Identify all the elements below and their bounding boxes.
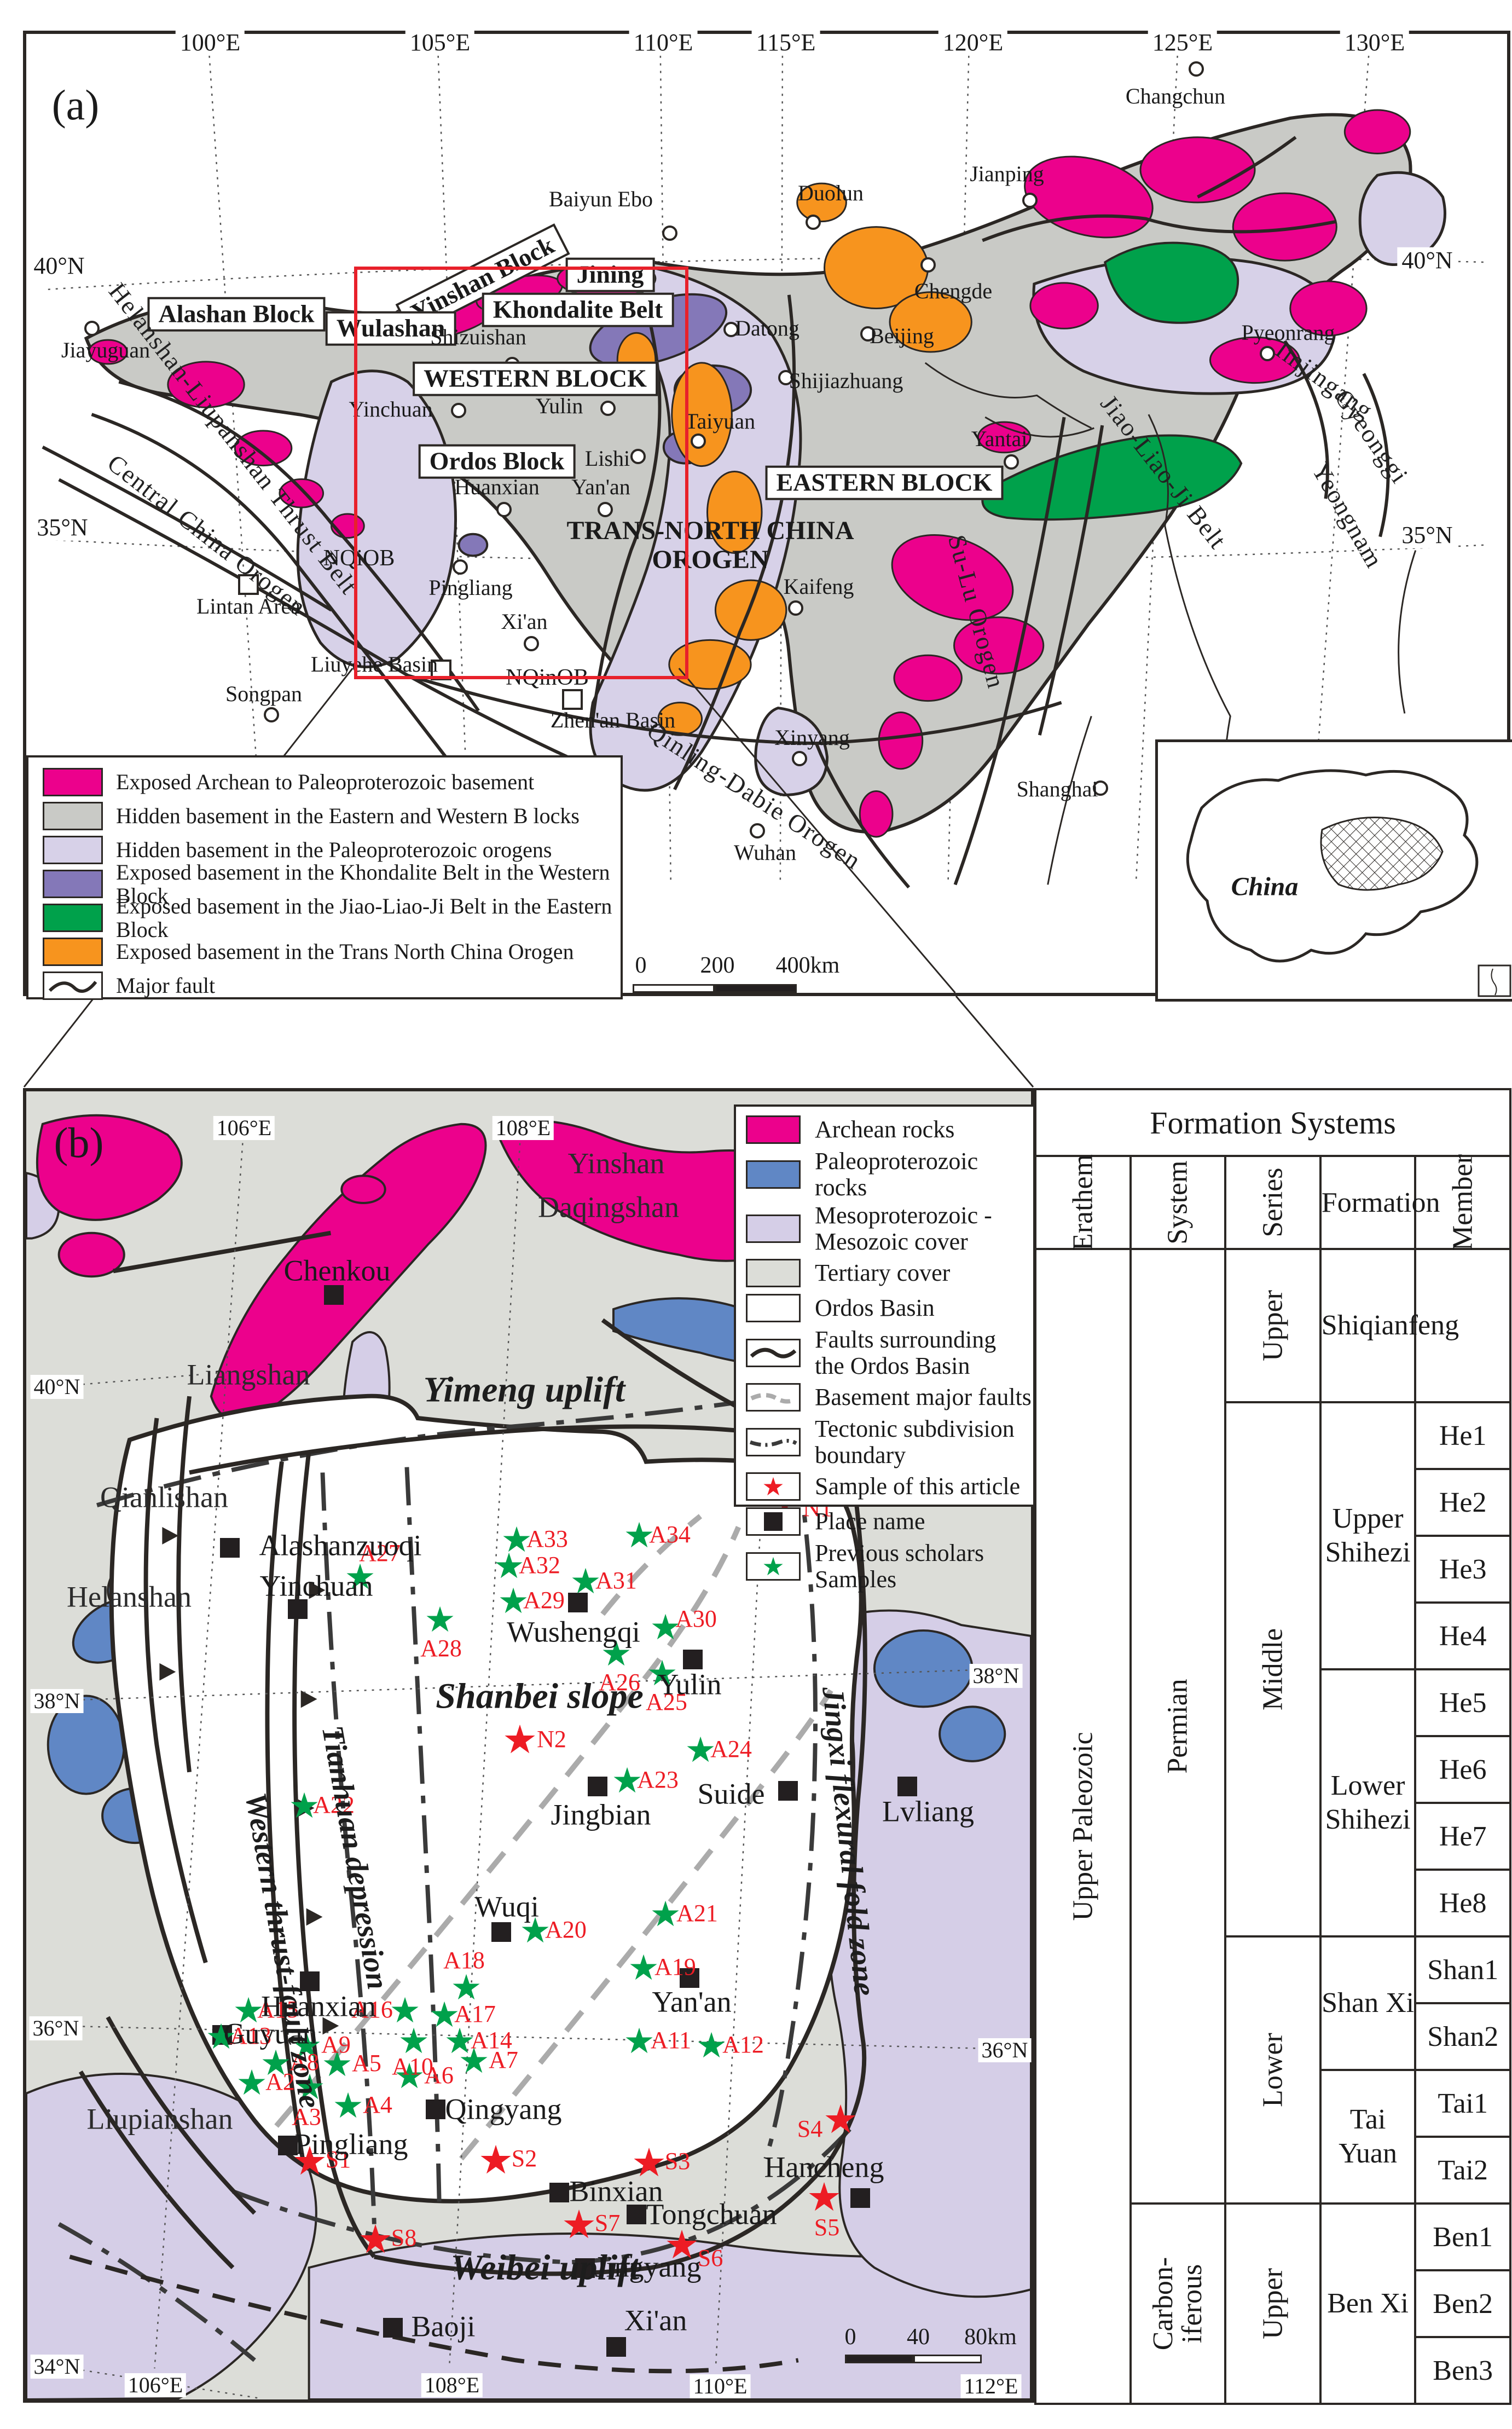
formation-systems-table: Formation Systems Erathem System Series … [1034, 1088, 1511, 2403]
place-label-yan-an: Yan'an [652, 1986, 731, 2018]
legend-a-item-major-fault: Major fault [28, 969, 621, 1003]
formation-shan-xi: Shan Xi [1320, 1936, 1416, 2070]
series-lower: Lower [1256, 2033, 1289, 2107]
label-qianlishan: Qianlishan [100, 1481, 228, 1513]
city-marker-yantai [1004, 454, 1019, 470]
fault-line-icon [746, 1339, 801, 1367]
member-tai1: Tai1 [1415, 2070, 1510, 2137]
label-35-n: 35°N [32, 514, 92, 541]
sample-label-a9: A9 [321, 2032, 351, 2058]
sample-label-s3: S3 [665, 2148, 690, 2174]
scalebar-b-seg2 [913, 2355, 982, 2363]
city-marker-jiayuguan [84, 321, 100, 336]
sample-star-n2: ★ [502, 1720, 538, 1759]
legend-b-label-2: Mesoproterozoic - Mesozoic cover [815, 1202, 1023, 1254]
sample-label-a28: A28 [420, 1635, 462, 1662]
sample-label-a17: A17 [454, 2001, 496, 2027]
scalebar-b-80km: 80km [964, 2324, 1017, 2350]
label-38-n: 38°N [970, 1664, 1023, 1688]
place-marker-lvliang [897, 1777, 917, 1796]
col-header-member: Member [1447, 1154, 1479, 1251]
legend-a-item-jiaoliaoji: Exposed basement in the Jiao-Liao-Ji Bel… [28, 901, 621, 935]
swatch-magenta [43, 768, 103, 796]
legend-a-label-2: Hidden basement in the Paleoproterozoic … [116, 838, 552, 861]
formation-shiqianfeng: Shiqianfeng [1320, 1249, 1416, 1402]
member-he4: He4 [1415, 1603, 1510, 1669]
basin-label-zhen-an-basin: Zhen'an Basin [551, 708, 675, 732]
label-110-e: 110°E [690, 2374, 751, 2398]
legend-b-item-archean: Archean rocks [736, 1112, 1033, 1147]
legend-b-item-faults: Faults surrounding the Ordos Basin [736, 1326, 1033, 1380]
member-ben2: Ben2 [1415, 2270, 1510, 2337]
label-108-e: 108°E [421, 2373, 483, 2397]
swatch-lavender [43, 836, 103, 864]
sample-label-a18: A18 [443, 1947, 485, 1974]
place-marker-alashanzuoqi [220, 1538, 240, 1558]
sample-label-a14: A14 [471, 2027, 512, 2054]
legend-b-label-5: Faults surrounding the Ordos Basin [815, 1327, 1023, 1379]
sample-label-s6: S6 [698, 2245, 723, 2271]
sample-star-s7: ★ [561, 2205, 597, 2244]
table-title: Formation Systems [1035, 1089, 1510, 1156]
label-36-n: 36°N [978, 2038, 1032, 2062]
panel-b: (b) Archean rocks Paleoproterozoic rocks… [23, 1088, 1034, 2403]
china-inset-svg [1158, 742, 1512, 999]
label-40-n: 40°N [31, 1375, 84, 1399]
legend-b-label-1: Paleoproterozoic rocks [815, 1148, 1033, 1200]
swatch-archean [746, 1115, 801, 1144]
label-helanshan: Helanshan [67, 1581, 192, 1613]
sample-label-a11: A11 [651, 2027, 691, 2054]
legend-a-label-5: Exposed basement in the Trans North Chin… [116, 940, 574, 963]
legend-a-label-0: Exposed Archean to Paleoproterozoic base… [116, 770, 534, 794]
city-marker-jianping [1022, 193, 1038, 208]
label-yinshan: Yinshan [567, 1147, 664, 1179]
scalebar-a-0: 0 [635, 953, 647, 978]
member-he6: He6 [1415, 1736, 1510, 1803]
member-he5: He5 [1415, 1669, 1510, 1736]
swatch-green [43, 904, 103, 932]
swatch-tertiary [746, 1259, 801, 1287]
place-marker-chenkou [324, 1285, 344, 1305]
label-yimeng-uplift: Yimeng uplift [424, 1370, 625, 1410]
label-105-e: 105°E [405, 30, 474, 56]
swatch-ordos-basin [746, 1294, 801, 1322]
fault-line-icon [43, 971, 103, 1000]
south-china-sea-inset [1479, 965, 1510, 996]
label-35-n: 35°N [1397, 522, 1457, 548]
member-he8: He8 [1415, 1870, 1510, 1936]
city-label-datong: Datong [735, 316, 800, 340]
label-alashan-block: Alashan Block [147, 297, 325, 332]
figure-page: (a) Exposed Archean to Paleoproterozoic … [0, 0, 1512, 2429]
label-38-n: 38°N [31, 1689, 84, 1713]
place-label-xi-an: Xi'an [624, 2304, 687, 2337]
scalebar-a-seg2 [715, 984, 797, 993]
place-label-lvliang: Lvliang [882, 1795, 974, 1827]
city-label-shanghai: Shanghai [1017, 777, 1098, 801]
dash-dot-line-icon [746, 1428, 801, 1456]
place-marker-qingyang [426, 2100, 445, 2119]
legend-b-item-place-name: Place name [736, 1504, 1033, 1539]
place-label-chenkou: Chenkou [284, 1254, 391, 1287]
label-108-e: 108°E [493, 1116, 554, 1140]
sample-label-a19: A19 [654, 1954, 696, 1980]
legend-b-label-7: Tectonic subdivision boundary [815, 1416, 1023, 1468]
city-label-changchun: Changchun [1126, 84, 1225, 108]
member-tai2: Tai2 [1415, 2137, 1510, 2204]
city-label-jiayuguan: Jiayuguan [61, 338, 150, 362]
sample-star-s2: ★ [478, 2140, 514, 2179]
place-label-yulin: Yulin [657, 1668, 721, 1701]
label-115-e: 115°E [752, 30, 820, 56]
place-label-pingliang: Pingliang [294, 2128, 408, 2160]
place-label-hancheng: Hancheng [764, 2151, 884, 2183]
sample-label-s5: S5 [814, 2214, 839, 2241]
label-daqingshan: Daqingshan [538, 1191, 679, 1223]
formation-ben-xi: Ben Xi [1320, 2204, 1416, 2404]
col-header-formation: Formation [1320, 1156, 1416, 1249]
place-marker-suide [778, 1781, 798, 1801]
city-label-songpan: Songpan [225, 682, 302, 706]
sample-label-s2: S2 [512, 2145, 537, 2172]
study-area-box [354, 267, 688, 679]
legend-a: Exposed Archean to Paleoproterozoic base… [26, 755, 623, 999]
panel-connectors [0, 996, 1512, 1088]
label-36-n: 36°N [30, 2016, 83, 2040]
label-106-e: 106°E [125, 2373, 186, 2397]
member-he7: He7 [1415, 1803, 1510, 1870]
city-label-chengde: Chengde [914, 279, 992, 303]
legend-a-label-1: Hidden basement in the Eastern and Weste… [116, 804, 580, 828]
swatch-gray [43, 802, 103, 830]
sample-label-n2: N2 [537, 1726, 566, 1753]
city-label-jianping: Jianping [970, 162, 1044, 186]
formation-tai-yuan: Tai Yuan [1320, 2070, 1416, 2204]
label-110-e: 110°E [629, 30, 698, 56]
place-marker-xi-an [606, 2337, 626, 2357]
legend-b-label-3: Tertiary cover [815, 1260, 950, 1286]
sample-star-s4: ★ [823, 2100, 859, 2139]
gray-dashed-line-icon [746, 1383, 801, 1412]
series-upper-1: Upper [1256, 1290, 1289, 1361]
scalebar-a-400km: 400km [776, 953, 840, 978]
basin-label-lintan-area: Lintan Area [196, 594, 300, 618]
label-40-n: 40°N [1397, 247, 1457, 274]
sample-star-a4: ★ [332, 2089, 363, 2124]
sample-label-s4: S4 [797, 2116, 822, 2142]
sample-label-a20: A20 [545, 1917, 587, 1943]
scalebar-b-0: 0 [845, 2324, 856, 2350]
member-shan2: Shan2 [1415, 2003, 1510, 2070]
series-middle: Middle [1256, 1628, 1289, 1710]
member-shan1: Shan1 [1415, 1936, 1510, 2003]
sample-label-a31: A31 [595, 1568, 637, 1594]
label-eastern-block: EASTERN BLOCK [766, 466, 1004, 500]
panel-b-tag: (b) [54, 1119, 104, 1166]
label-shanbei-slope: Shanbei slope [436, 1677, 644, 1717]
legend-b-item-tertiary: Tertiary cover [736, 1256, 1033, 1291]
place-marker-wuqi [491, 1922, 511, 1942]
city-marker-songpan [264, 707, 279, 722]
swatch-purple [43, 870, 103, 898]
sample-label-a5: A5 [352, 2050, 381, 2077]
label-112-e: 112°E [961, 2374, 1022, 2398]
green-star-icon: ★ [746, 1552, 801, 1581]
place-marker-hancheng [850, 2188, 870, 2208]
place-label-jingyang: Jingyang [595, 2251, 702, 2283]
scalebar-a-200: 200 [700, 953, 735, 978]
formation-lower-shihezi: Lower Shihezi [1320, 1669, 1416, 1936]
city-marker-kaifeng [788, 600, 803, 616]
sample-label-a12: A12 [722, 2032, 764, 2058]
china-inset: China [1155, 739, 1512, 1002]
place-label-yinchuan: Yinchuan [260, 1570, 373, 1602]
black-square-icon [746, 1507, 801, 1536]
swatch-meso-cover [746, 1214, 801, 1243]
place-label-qingyang: Qingyang [445, 2093, 562, 2125]
city-label-shijiazhuang: Shijiazhuang [789, 369, 903, 393]
city-marker-baiyun-ebo [662, 225, 677, 241]
city-label-beijing: Beijing [870, 324, 934, 348]
label-125-e: 125°E [1148, 30, 1217, 56]
place-label-suide: Suide [697, 1778, 764, 1810]
legend-b-label-10: Previous scholars Samples [815, 1540, 1033, 1592]
legend-b-label-9: Place name [815, 1508, 925, 1535]
legend-b-item-paleoproterozoic: Paleoproterozoic rocks [736, 1147, 1033, 1201]
sample-label-a21: A21 [676, 1900, 718, 1927]
place-marker-jingbian [588, 1777, 607, 1796]
legend-a-item-hidden-blocks: Hidden basement in the Eastern and Weste… [28, 799, 621, 833]
place-label-guyuan: Guyuan [224, 2017, 317, 2050]
place-label-baoji: Baoji [412, 2310, 476, 2343]
place-label-alashanzuoqi: Alashanzuoqi [259, 1529, 422, 1561]
panel-a: (a) Exposed Archean to Paleoproterozoic … [23, 31, 1510, 996]
place-marker-binxian [549, 2183, 569, 2202]
sample-label-a23: A23 [637, 1767, 679, 1793]
label-100-e: 100°E [176, 30, 245, 56]
col-header-series: Series [1256, 1167, 1289, 1237]
scalebar-b-40: 40 [907, 2324, 930, 2350]
city-label-wuhan: Wuhan [734, 841, 796, 865]
scalebar-a [633, 984, 797, 993]
sample-label-a29: A29 [523, 1587, 565, 1613]
scalebar-a-seg1 [633, 984, 715, 993]
basin-marker-zhen-an-basin [562, 689, 583, 710]
label-40-n: 40°N [29, 253, 89, 279]
legend-a-label-4: Exposed basement in the Jiao-Liao-Ji Bel… [116, 894, 621, 941]
legend-a-label-6: Major fault [116, 974, 215, 997]
member-ben1: Ben1 [1415, 2204, 1510, 2270]
sample-label-a32: A32 [519, 1552, 560, 1578]
legend-a-item-tnco: Exposed basement in the Trans North Chin… [28, 935, 621, 969]
sample-label-a24: A24 [710, 1736, 752, 1762]
series-upper-2: Upper [1256, 2268, 1289, 2339]
formation-upper-shihezi: Upper Shihezi [1320, 1402, 1416, 1669]
place-marker-baoji [383, 2318, 403, 2338]
legend-b-item-basement-faults: Basement major faults [736, 1380, 1033, 1415]
city-label-yantai: Yantai [971, 427, 1028, 451]
member-he1: He1 [1415, 1402, 1510, 1469]
sample-label-s8: S8 [391, 2225, 416, 2251]
sample-label-a10: A10 [392, 2054, 433, 2080]
legend-b-item-article-sample: ★ Sample of this article [736, 1469, 1033, 1504]
member-ben3: Ben3 [1415, 2337, 1510, 2404]
member-he3: He3 [1415, 1536, 1510, 1603]
place-label-wuqi: Wuqi [474, 1890, 539, 1923]
legend-b-item-previous-samples: ★ Previous scholars Samples [736, 1539, 1033, 1593]
city-label-duolun: Duolun [798, 181, 864, 205]
sample-label-a4: A4 [363, 2092, 392, 2118]
label-34-n: 34°N [31, 2355, 84, 2379]
china-label: China [1231, 873, 1299, 902]
sample-star-a28: ★ [424, 1603, 455, 1638]
legend-b-label-0: Archean rocks [815, 1117, 954, 1143]
city-marker-changchun [1189, 61, 1204, 77]
panel-a-tag: (a) [52, 82, 100, 129]
city-marker-wuhan [750, 823, 765, 838]
scalebar-b [845, 2355, 982, 2363]
red-star-icon: ★ [746, 1472, 801, 1501]
swatch-orange [43, 938, 103, 966]
system-permian: Permian [1162, 1679, 1194, 1773]
col-header-system: System [1162, 1160, 1194, 1244]
city-marker-duolun [806, 215, 821, 230]
place-label-tongchuan: Tongchuan [646, 2198, 777, 2230]
label-130-e: 130°E [1340, 30, 1409, 56]
legend-b-label-6: Basement major faults [815, 1384, 1032, 1410]
city-label-pyeonrang: Pyeonrang [1241, 321, 1335, 345]
legend-a-item-archean: Exposed Archean to Paleoproterozoic base… [28, 765, 621, 799]
sample-label-a33: A33 [526, 1526, 568, 1552]
erathem-upper-paleozoic: Upper Paleozoic [1067, 1732, 1099, 1921]
sample-label-s7: S7 [595, 2210, 620, 2236]
city-marker-chengde [920, 257, 936, 273]
label-120-e: 120°E [939, 30, 1007, 56]
city-marker-xinyang [792, 751, 807, 766]
place-marker-yulin [683, 1650, 703, 1669]
scalebar-b-seg1 [845, 2355, 913, 2363]
legend-b-item-tectonic-boundary: Tectonic subdivision boundary [736, 1415, 1033, 1469]
city-label-xinyang: Xinyang [774, 726, 850, 750]
sample-star-s8: ★ [358, 2219, 393, 2259]
place-label-wushengqi: Wushengqi [507, 1616, 640, 1648]
sample-label-a34: A34 [649, 1522, 691, 1548]
city-label-kaifeng: Kaifeng [784, 575, 854, 599]
place-label-jingbian: Jingbian [551, 1798, 651, 1831]
legend-b-item-meso-cover: Mesoproterozoic - Mesozoic cover [736, 1201, 1033, 1256]
legend-b-label-8: Sample of this article [815, 1473, 1020, 1500]
legend-b: Archean rocks Paleoproterozoic rocks Mes… [734, 1104, 1035, 1507]
city-label-baiyun-ebo: Baiyun Ebo [549, 187, 653, 211]
member-shiqianfeng-blank [1415, 1249, 1510, 1402]
label-liupianshan: Liupianshan [87, 2103, 233, 2135]
city-label-taiyuan: Taiyuan [685, 409, 755, 433]
city-marker-taiyuan [691, 433, 706, 449]
member-he2: He2 [1415, 1469, 1510, 1536]
sample-star-a16: ★ [389, 1993, 420, 2028]
system-carboniferous: Carbon-iferous [1149, 2222, 1207, 2386]
label-liangshan: Liangshan [187, 1358, 310, 1391]
legend-b-label-4: Ordos Basin [815, 1295, 935, 1321]
col-header-erathem: Erathem [1067, 1154, 1099, 1251]
label-106-e: 106°E [213, 1116, 275, 1140]
sample-label-a30: A30 [675, 1606, 717, 1632]
legend-b-item-ordos-basin: Ordos Basin [736, 1291, 1033, 1326]
swatch-paleoproterozoic [746, 1160, 801, 1189]
